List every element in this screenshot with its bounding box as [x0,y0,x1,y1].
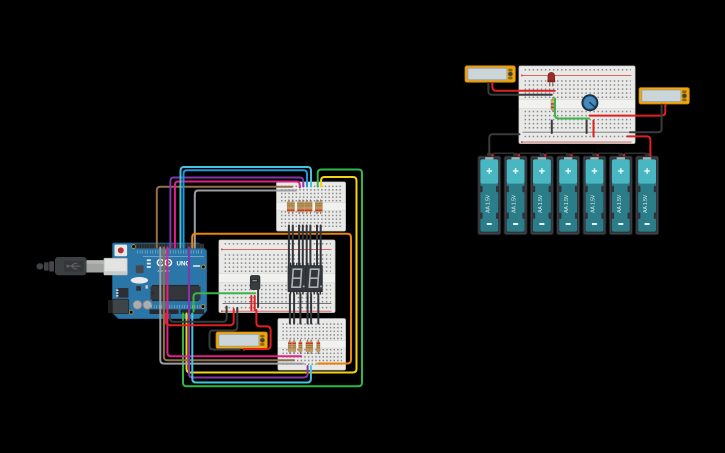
svg-text:AA 1.5V: AA 1.5V [485,194,491,213]
svg-text:AA 1.5V: AA 1.5V [564,194,570,213]
svg-text:AA 1.5V: AA 1.5V [512,194,518,213]
svg-text:AA 1.5V: AA 1.5V [643,194,649,213]
svg-text:AA 1.5V: AA 1.5V [617,194,623,213]
svg-text:AA 1.5V: AA 1.5V [591,194,597,213]
svg-text:AA 1.5V: AA 1.5V [538,194,544,213]
